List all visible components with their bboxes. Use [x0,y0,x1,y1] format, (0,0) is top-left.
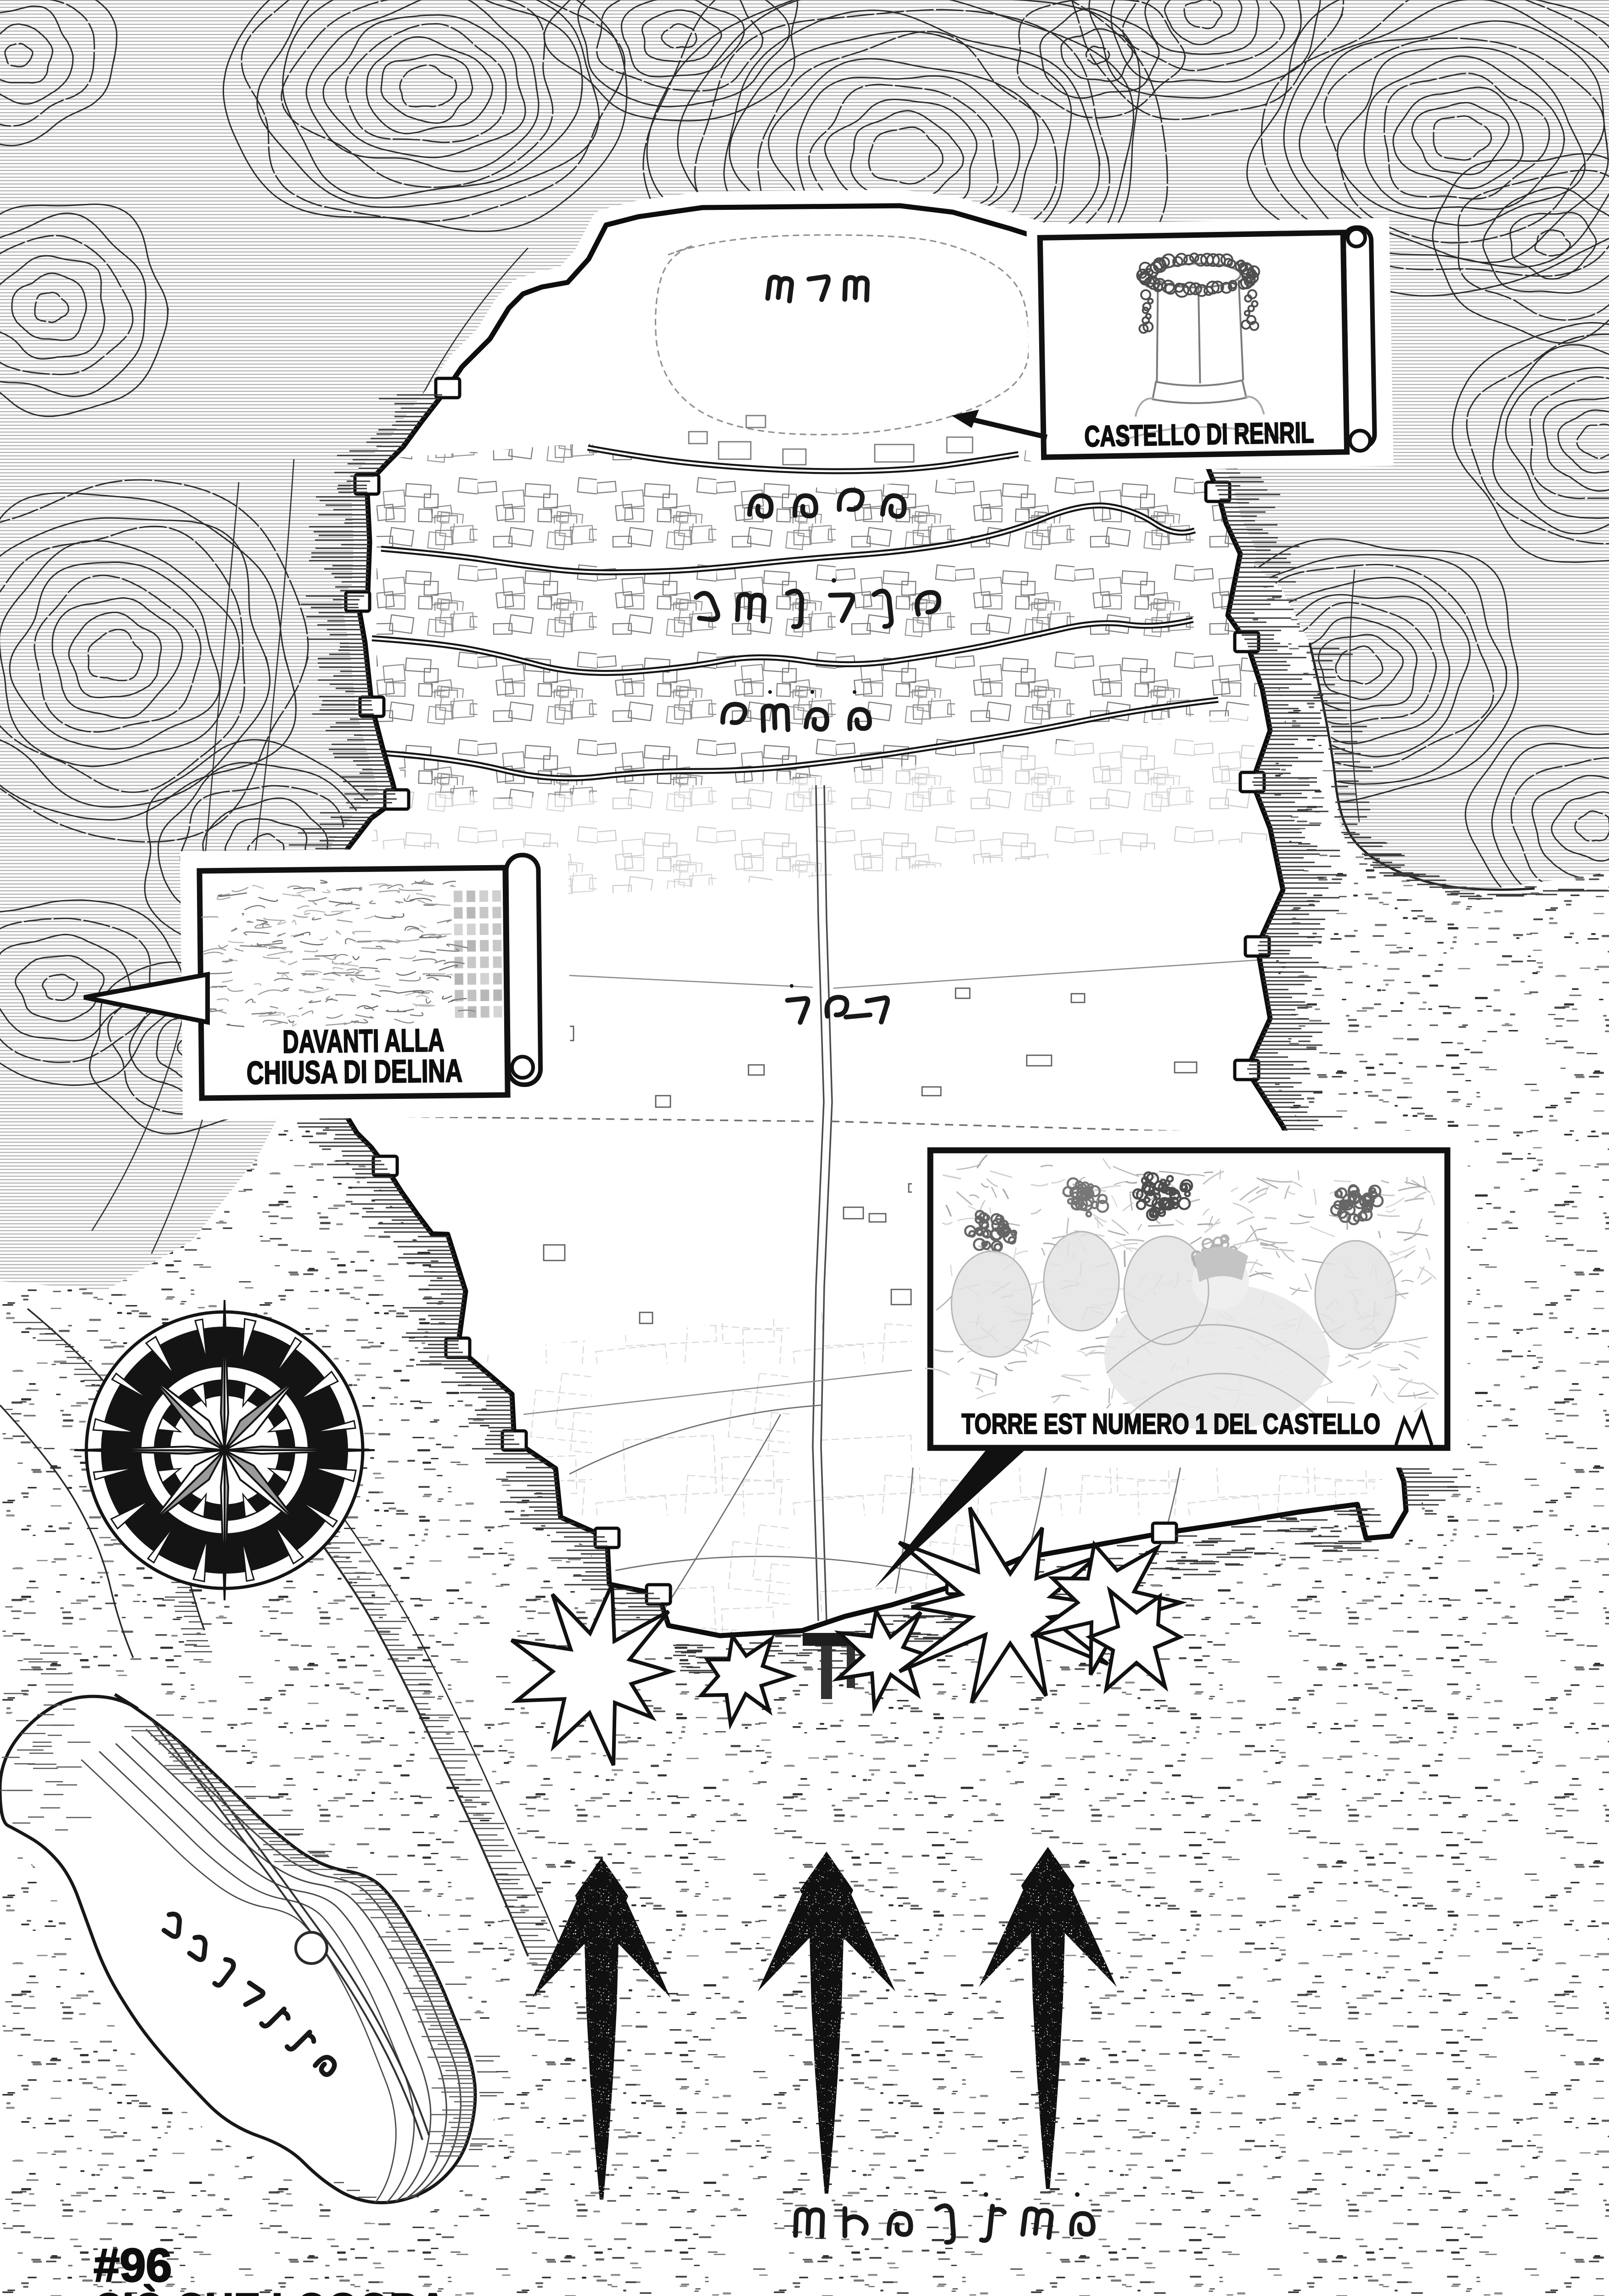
svg-text:CIÒ CHE LOGORA: CIÒ CHE LOGORA [94,2284,447,2296]
svg-text:#96: #96 [94,2239,172,2291]
svg-text:CASTELLO DI RENRIL: CASTELLO DI RENRIL [1084,416,1314,453]
svg-text:CHIUSA DI DELINA: CHIUSA DI DELINA [247,1053,463,1091]
svg-text:TORRE EST NUMERO 1 DEL CASTELL: TORRE EST NUMERO 1 DEL CASTELLO [962,1408,1380,1440]
